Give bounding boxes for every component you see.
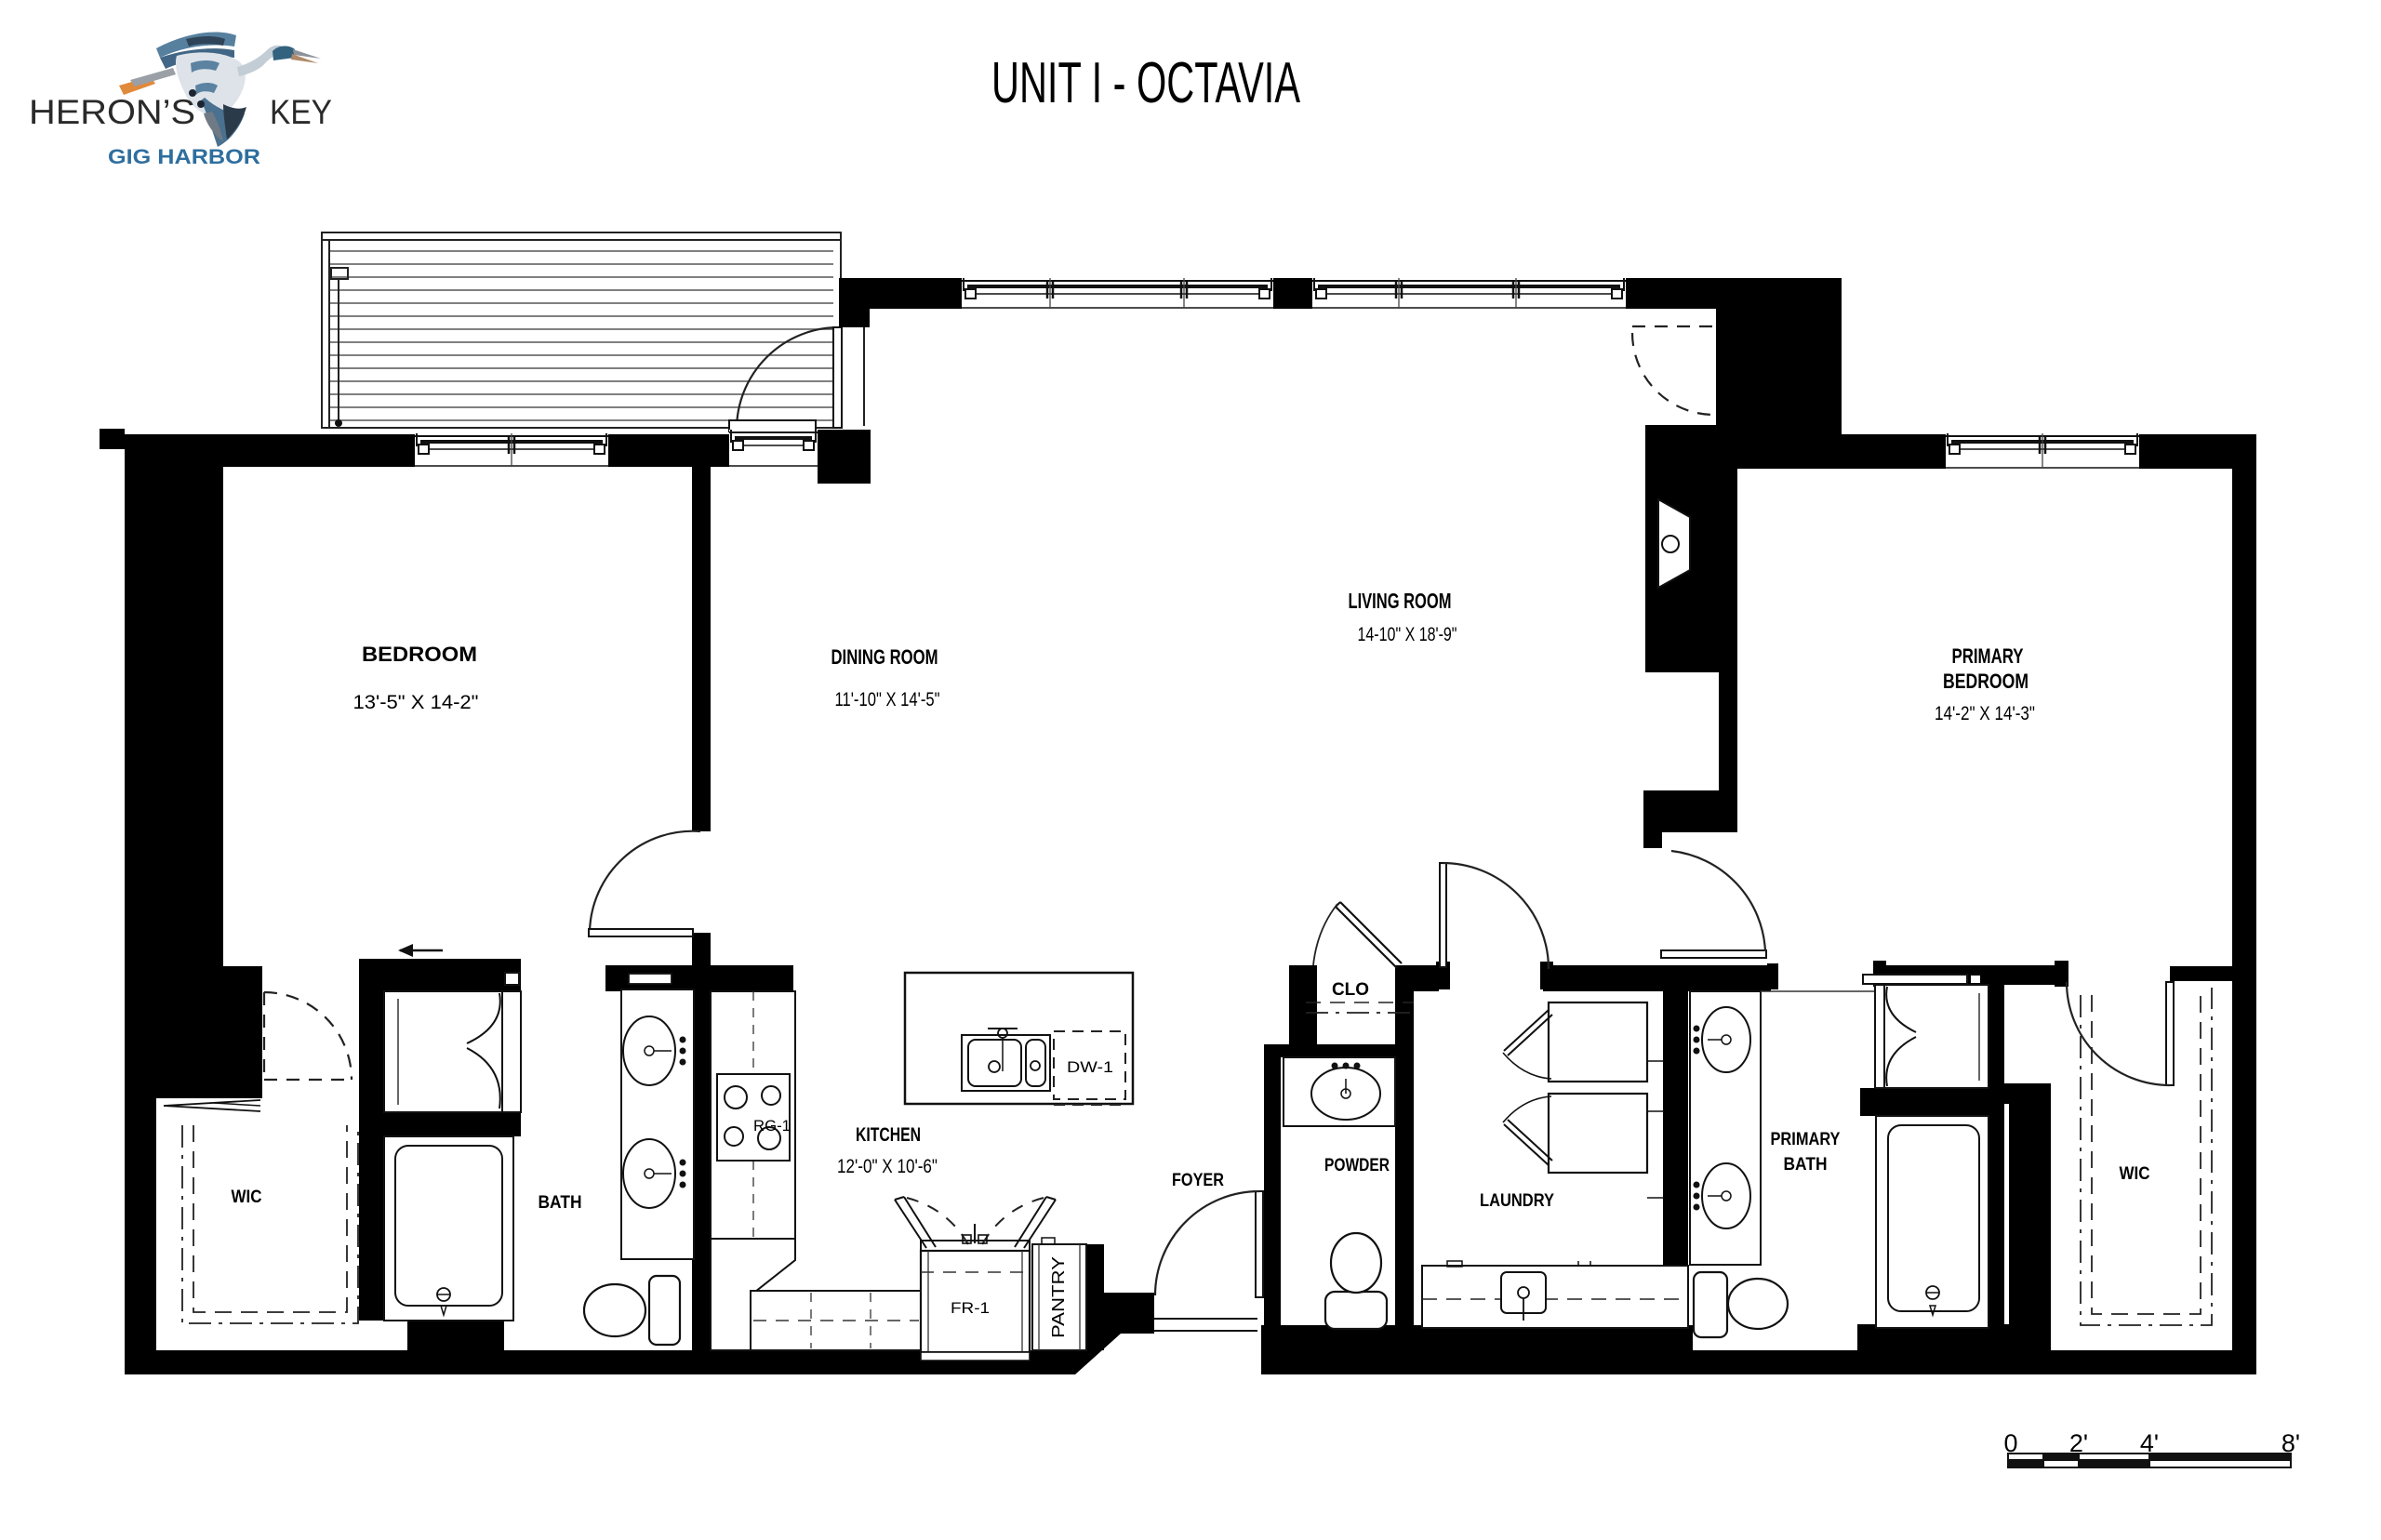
svg-text:12'-0" X 10'-6": 12'-0" X 10'-6" bbox=[837, 1156, 938, 1177]
svg-text:13'-5" X 14-2": 13'-5" X 14-2" bbox=[353, 692, 479, 713]
svg-text:WIC: WIC bbox=[232, 1188, 262, 1207]
svg-text:RG-1: RG-1 bbox=[753, 1117, 791, 1135]
svg-text:BATH: BATH bbox=[1784, 1155, 1828, 1175]
svg-text:LIVING ROOM: LIVING ROOM bbox=[1349, 589, 1452, 613]
svg-text:BEDROOM: BEDROOM bbox=[362, 643, 477, 666]
svg-text:DW-1: DW-1 bbox=[1067, 1058, 1113, 1076]
svg-text:2': 2' bbox=[2069, 1429, 2088, 1457]
svg-text:WIC: WIC bbox=[2120, 1164, 2150, 1184]
svg-text:KITCHEN: KITCHEN bbox=[856, 1124, 921, 1146]
svg-text:4': 4' bbox=[2140, 1429, 2159, 1457]
svg-text:FOYER: FOYER bbox=[1172, 1171, 1224, 1190]
svg-text:LAUNDRY: LAUNDRY bbox=[1480, 1191, 1554, 1211]
svg-text:BATH: BATH bbox=[539, 1193, 582, 1213]
svg-text:HERON’S: HERON’S bbox=[29, 93, 195, 131]
svg-text:0: 0 bbox=[2003, 1429, 2017, 1457]
svg-text:POWDER: POWDER bbox=[1324, 1156, 1390, 1175]
svg-text:KEY: KEY bbox=[270, 93, 332, 131]
svg-text:14'-2" X 14'-3": 14'-2" X 14'-3" bbox=[1935, 703, 2035, 724]
svg-text:PRIMARY: PRIMARY bbox=[1771, 1130, 1841, 1149]
svg-text:BEDROOM: BEDROOM bbox=[1943, 670, 2029, 693]
svg-text:14-10" X 18'-9": 14-10" X 18'-9" bbox=[1358, 624, 1457, 645]
svg-text:PANTRY: PANTRY bbox=[1049, 1256, 1068, 1338]
svg-text:FR-1: FR-1 bbox=[951, 1299, 990, 1317]
svg-text:DINING ROOM: DINING ROOM bbox=[831, 645, 938, 669]
svg-text:CLO: CLO bbox=[1332, 980, 1369, 1000]
svg-text:UNIT I - OCTAVIA: UNIT I - OCTAVIA bbox=[991, 51, 1300, 115]
svg-text:11'-10" X 14'-5": 11'-10" X 14'-5" bbox=[835, 689, 940, 710]
svg-text:PRIMARY: PRIMARY bbox=[1952, 644, 2024, 668]
svg-text:GIG HARBOR: GIG HARBOR bbox=[108, 145, 260, 168]
svg-text:8': 8' bbox=[2281, 1429, 2300, 1457]
